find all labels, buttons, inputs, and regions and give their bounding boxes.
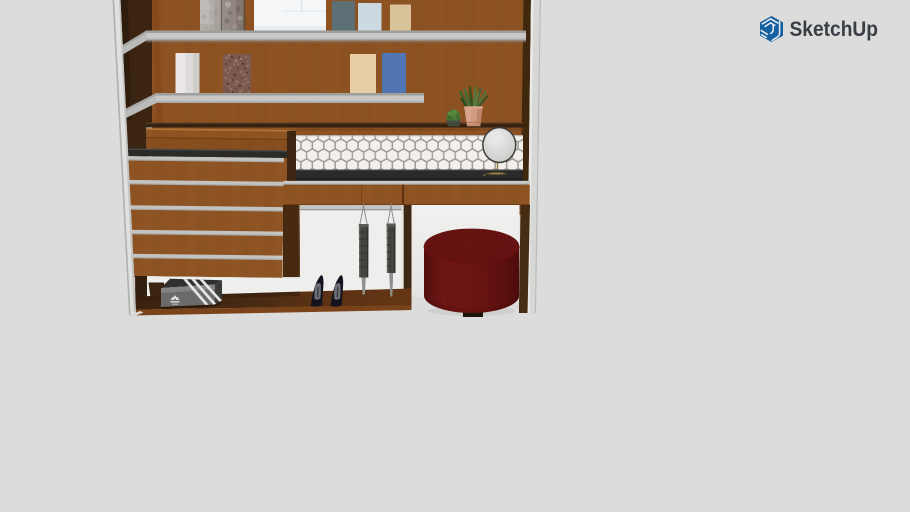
svg-text:SketchUp: SketchUp [790, 17, 879, 41]
